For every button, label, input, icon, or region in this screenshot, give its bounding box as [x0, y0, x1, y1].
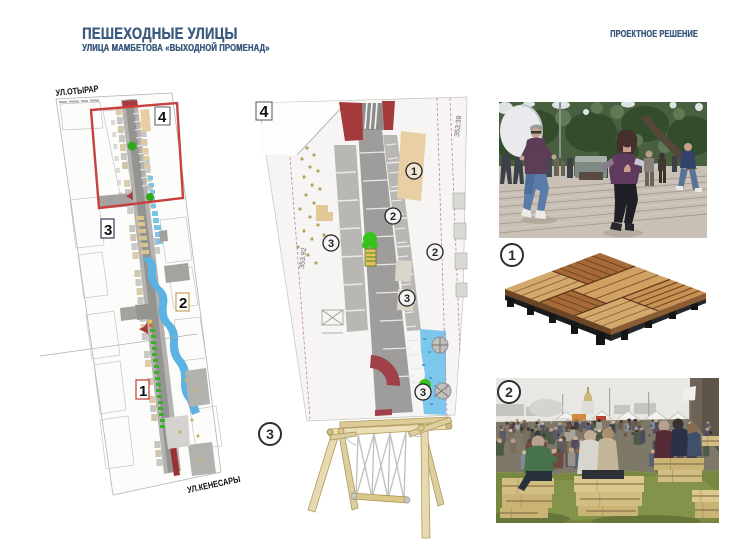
svg-text:2: 2 [179, 295, 187, 312]
svg-text:3: 3 [328, 238, 334, 250]
svg-text:3: 3 [104, 222, 112, 239]
svg-text:1: 1 [139, 383, 147, 400]
svg-text:УЛ.ОТЫРАР: УЛ.ОТЫРАР [55, 84, 99, 98]
svg-text:3: 3 [420, 387, 426, 399]
svg-text:2: 2 [432, 247, 438, 259]
svg-text:2: 2 [390, 211, 396, 223]
svg-text:1: 1 [411, 166, 417, 178]
svg-text:4: 4 [260, 104, 269, 121]
svg-text:3: 3 [404, 293, 410, 305]
svg-text:4: 4 [158, 109, 167, 126]
